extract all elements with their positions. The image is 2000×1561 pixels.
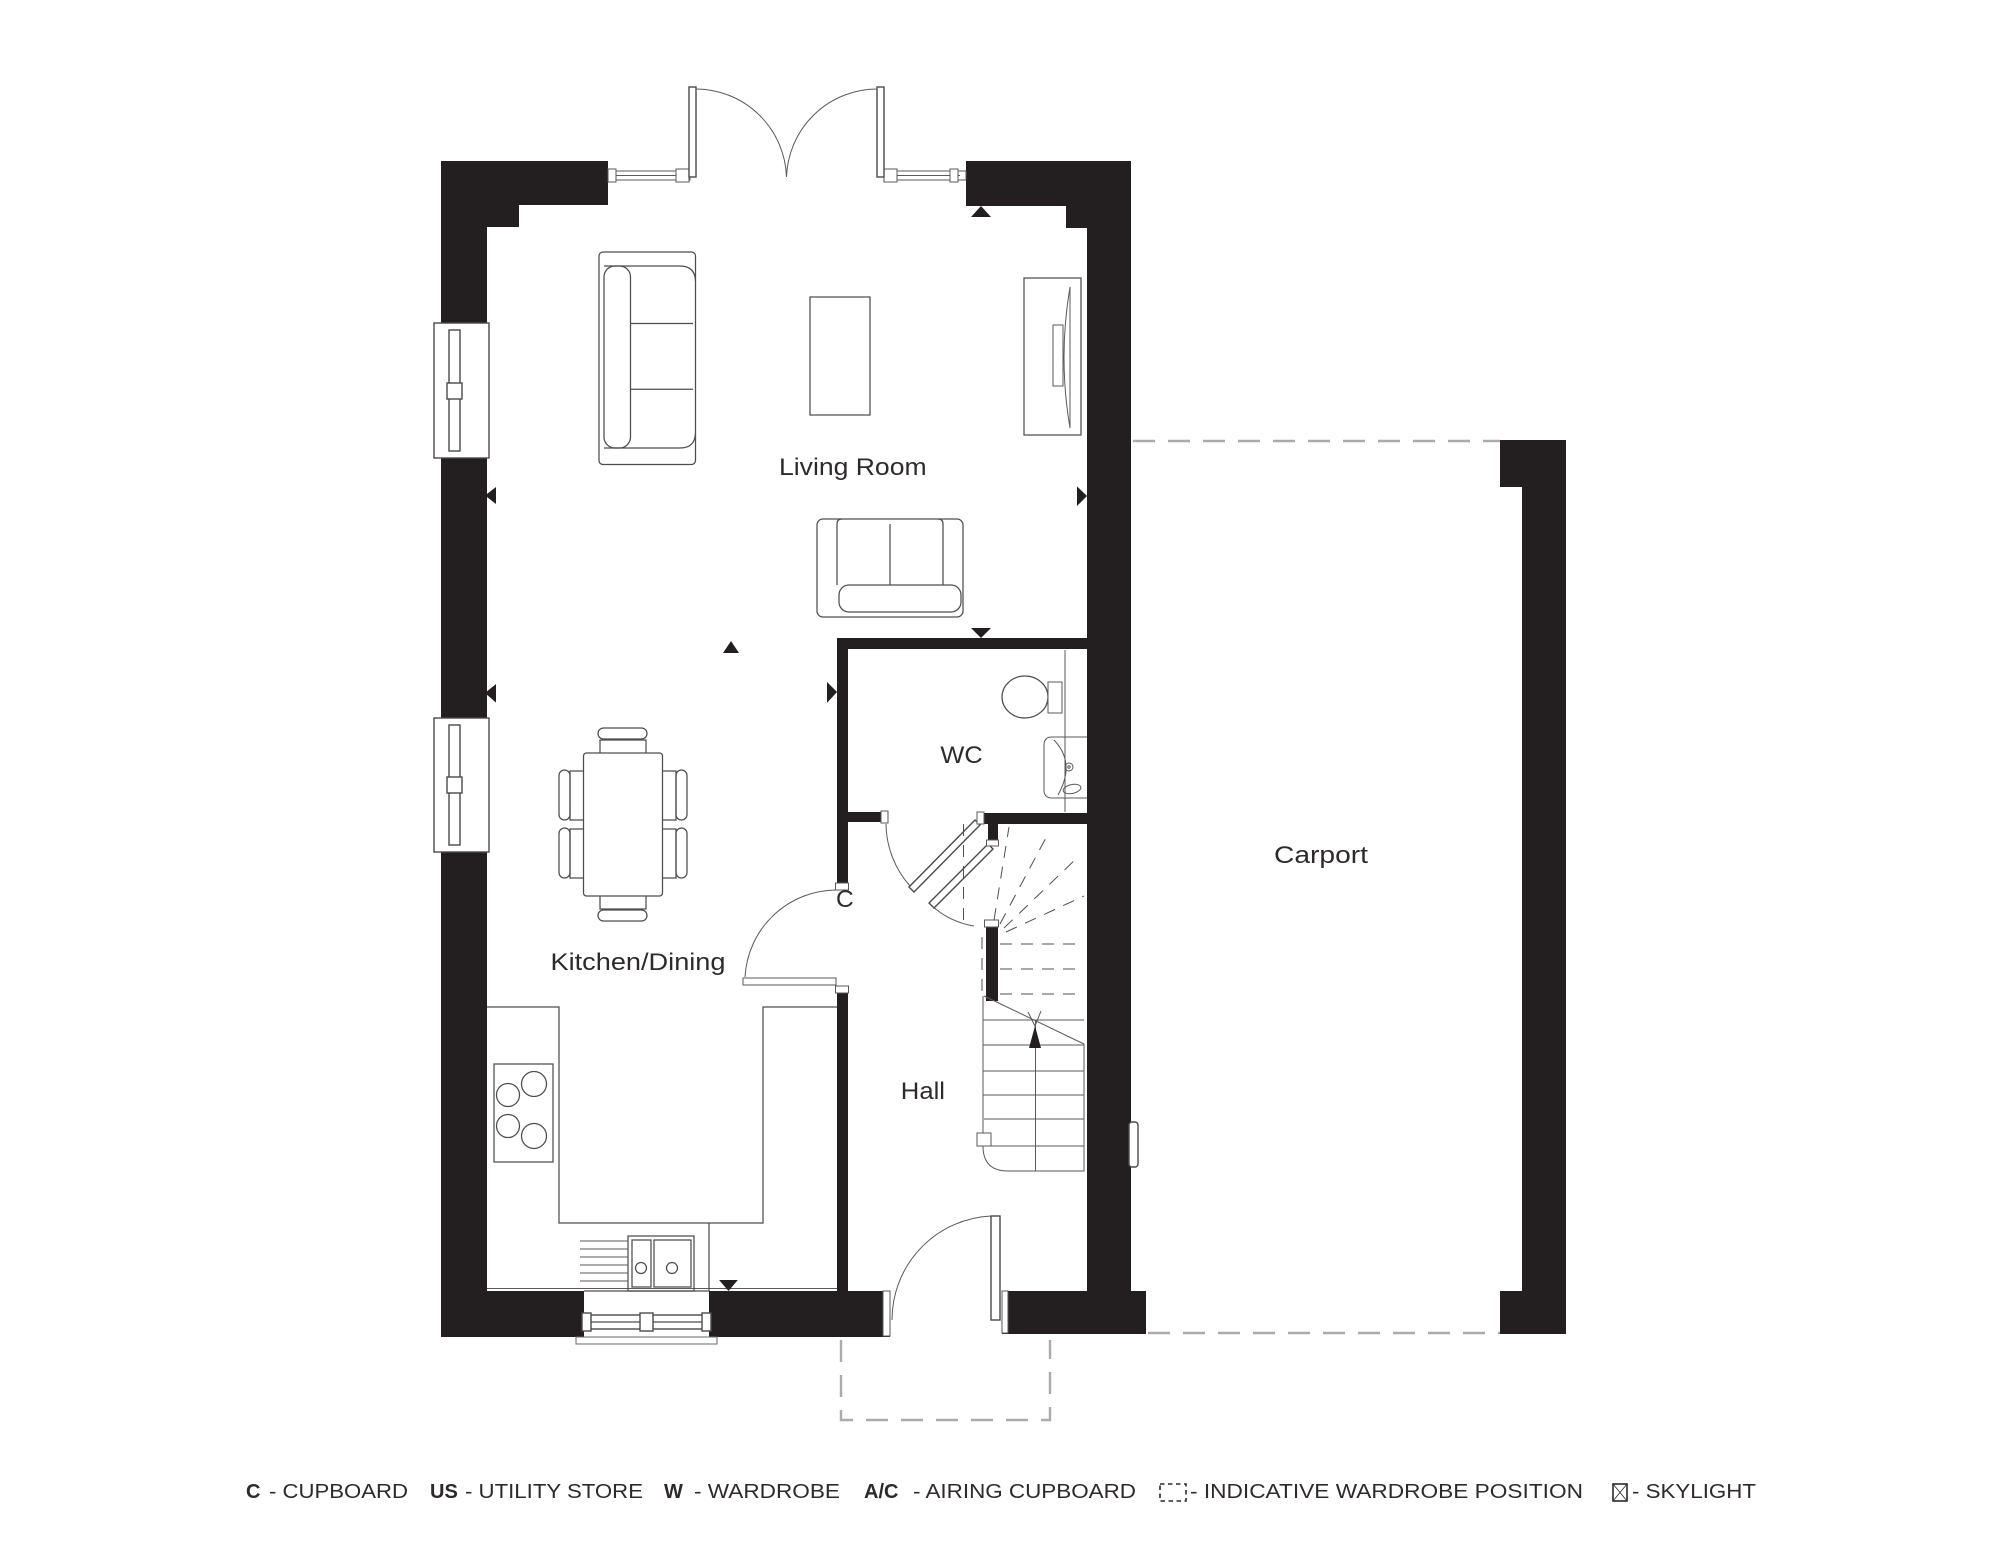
svg-text:- SKYLIGHT: - SKYLIGHT (1632, 1481, 1756, 1503)
svg-text:Kitchen/Dining: Kitchen/Dining (551, 949, 726, 976)
svg-text:WC: WC (940, 742, 982, 769)
svg-text:Hall: Hall (901, 1078, 945, 1105)
svg-text:Living Room: Living Room (779, 454, 927, 481)
svg-text:- WARDROBE: - WARDROBE (694, 1481, 840, 1503)
svg-text:- AIRING CUPBOARD: - AIRING CUPBOARD (913, 1481, 1136, 1503)
svg-text:US: US (430, 1481, 458, 1503)
svg-text:C: C (246, 1481, 260, 1503)
svg-text:A/C: A/C (864, 1481, 898, 1503)
svg-text:Carport: Carport (1274, 842, 1368, 869)
svg-text:C: C (836, 886, 854, 913)
svg-text:- CUPBOARD: - CUPBOARD (269, 1481, 408, 1503)
svg-text:- UTILITY STORE: - UTILITY STORE (465, 1481, 643, 1503)
svg-text:- INDICATIVE WARDROBE POSITION: - INDICATIVE WARDROBE POSITION (1190, 1481, 1583, 1503)
svg-text:W: W (664, 1481, 683, 1503)
